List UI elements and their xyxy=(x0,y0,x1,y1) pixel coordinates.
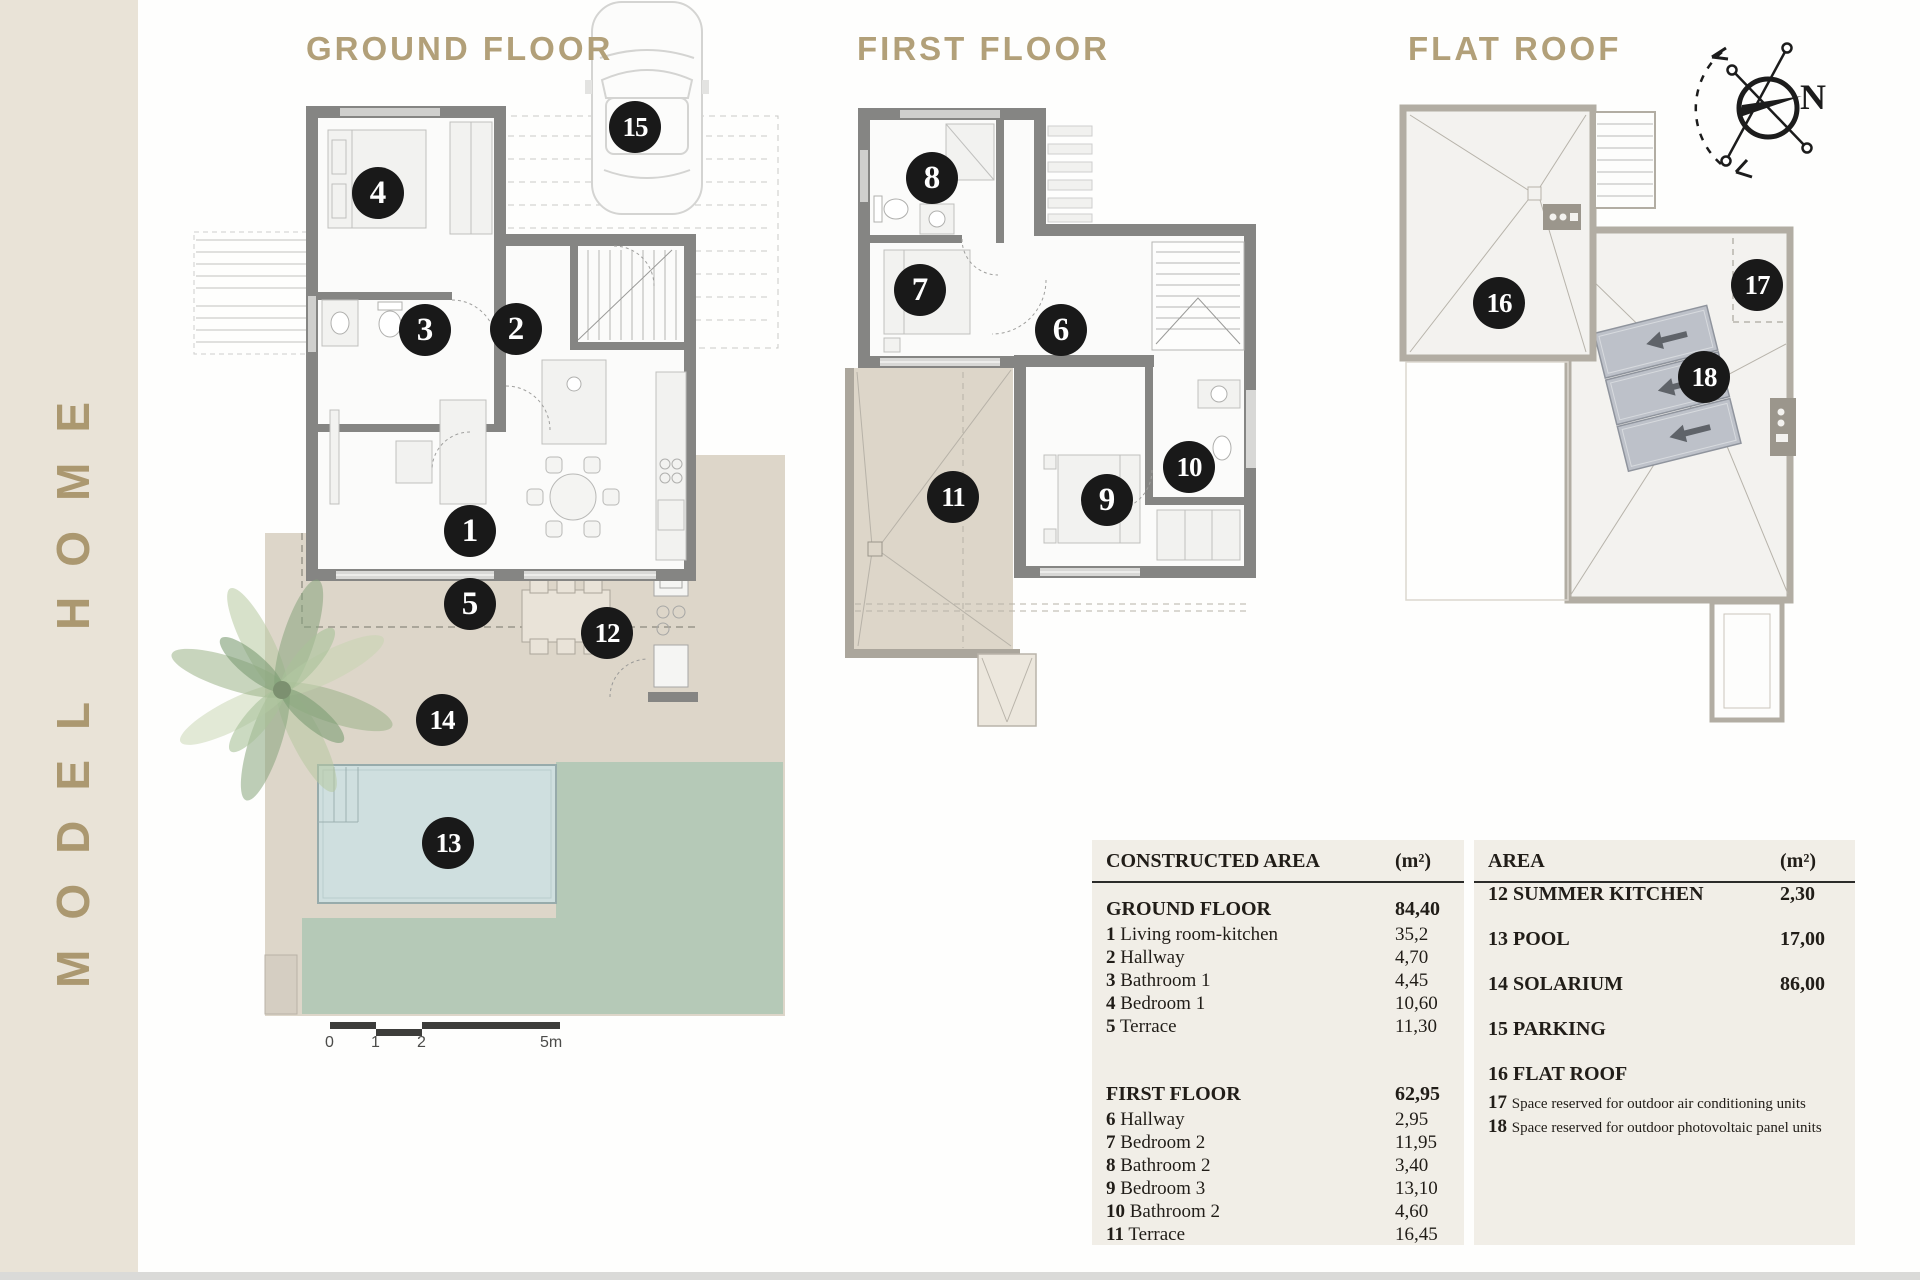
table-row: 4 Bedroom 110,60 xyxy=(1106,993,1450,1016)
marker-hallway-gf: 2 xyxy=(490,303,542,355)
table-title: AREA xyxy=(1488,850,1545,872)
table-row: 3 Bathroom 14,45 xyxy=(1106,970,1450,993)
area-table: AREA (m²) 12 SUMMER KITCHEN2,3013 POOL17… xyxy=(1474,840,1855,1245)
marker-bathroom-1: 3 xyxy=(399,304,451,356)
compass-north-label: N xyxy=(1800,76,1826,118)
scale-bar xyxy=(330,1022,560,1036)
table-row: 13 POOL17,00 xyxy=(1488,928,1841,952)
compass-icon xyxy=(1696,44,1812,178)
marker-bedroom-1: 4 xyxy=(352,167,404,219)
table-row: 6 Hallway2,95 xyxy=(1106,1109,1450,1132)
scale-label-0: 0 xyxy=(325,1034,334,1052)
table-row: 11 Terrace16,45 xyxy=(1106,1224,1450,1247)
marker-ac-units: 17 xyxy=(1731,259,1783,311)
marker-pool: 13 xyxy=(422,817,474,869)
marker-terrace-gf: 5 xyxy=(444,578,496,630)
marker-flat-roof: 16 xyxy=(1473,277,1525,329)
table-row: 8 Bathroom 23,40 xyxy=(1106,1155,1450,1178)
scale-label-5m: 5m xyxy=(540,1034,562,1052)
plan-sheet: MODEL HOME GROUND FLOOR FIRST FLOOR FLAT… xyxy=(0,0,1920,1280)
marker-bathroom-2: 8 xyxy=(906,152,958,204)
table-unit: (m²) xyxy=(1780,850,1816,873)
table-row: 12 SUMMER KITCHEN2,30 xyxy=(1488,883,1841,907)
table-row: 10 Bathroom 24,60 xyxy=(1106,1201,1450,1224)
ground-floor-title: GROUND FLOOR xyxy=(306,30,613,68)
marker-hallway-ff: 6 xyxy=(1035,304,1087,356)
table-section-header: GROUND FLOOR84,40 xyxy=(1106,898,1450,922)
flat-roof-title: FLAT ROOF xyxy=(1408,30,1621,68)
table-row: 7 Bedroom 211,95 xyxy=(1106,1132,1450,1155)
first-floor-title: FIRST FLOOR xyxy=(857,30,1110,68)
table-unit: (m²) xyxy=(1395,850,1431,873)
marker-terrace-ff: 11 xyxy=(927,471,979,523)
marker-bathroom-2b: 10 xyxy=(1163,441,1215,493)
table-row: 17 Space reserved for outdoor air condit… xyxy=(1488,1092,1841,1116)
table-header: AREA (m²) xyxy=(1474,840,1855,873)
table-row: 14 SOLARIUM86,00 xyxy=(1488,973,1841,997)
marker-bedroom-2: 7 xyxy=(894,264,946,316)
table-title: CONSTRUCTED AREA xyxy=(1106,850,1320,872)
table-row: 2 Hallway4,70 xyxy=(1106,947,1450,970)
table-row: 5 Terrace11,30 xyxy=(1106,1016,1450,1039)
scale-label-1: 1 xyxy=(371,1034,380,1052)
brand-vertical-title: MODEL HOME xyxy=(46,372,100,988)
marker-parking: 15 xyxy=(609,101,661,153)
marker-living-room: 1 xyxy=(444,505,496,557)
marker-bedroom-3: 9 xyxy=(1081,474,1133,526)
table-row: 16 FLAT ROOF xyxy=(1488,1063,1841,1087)
constructed-area-table: CONSTRUCTED AREA (m²) GROUND FLOOR84,401… xyxy=(1092,840,1464,1245)
marker-solarium: 14 xyxy=(416,694,468,746)
page-bottom-edge xyxy=(0,1272,1920,1280)
table-row: 15 PARKING xyxy=(1488,1018,1841,1042)
table-row: 1 Living room-kitchen35,2 xyxy=(1106,924,1450,947)
area-table-body: 12 SUMMER KITCHEN2,3013 POOL17,0014 SOLA… xyxy=(1474,883,1855,1140)
scale-label-2: 2 xyxy=(417,1034,426,1052)
marker-summer-kitchen: 12 xyxy=(581,607,633,659)
marker-pv-units: 18 xyxy=(1678,351,1730,403)
table-row: 18 Space reserved for outdoor photovolta… xyxy=(1488,1116,1841,1140)
table-row: 9 Bedroom 313,10 xyxy=(1106,1178,1450,1201)
constructed-table-body: GROUND FLOOR84,401 Living room-kitchen35… xyxy=(1092,898,1464,1247)
table-header: CONSTRUCTED AREA (m²) xyxy=(1092,840,1464,873)
table-section-header: FIRST FLOOR62,95 xyxy=(1106,1083,1450,1107)
